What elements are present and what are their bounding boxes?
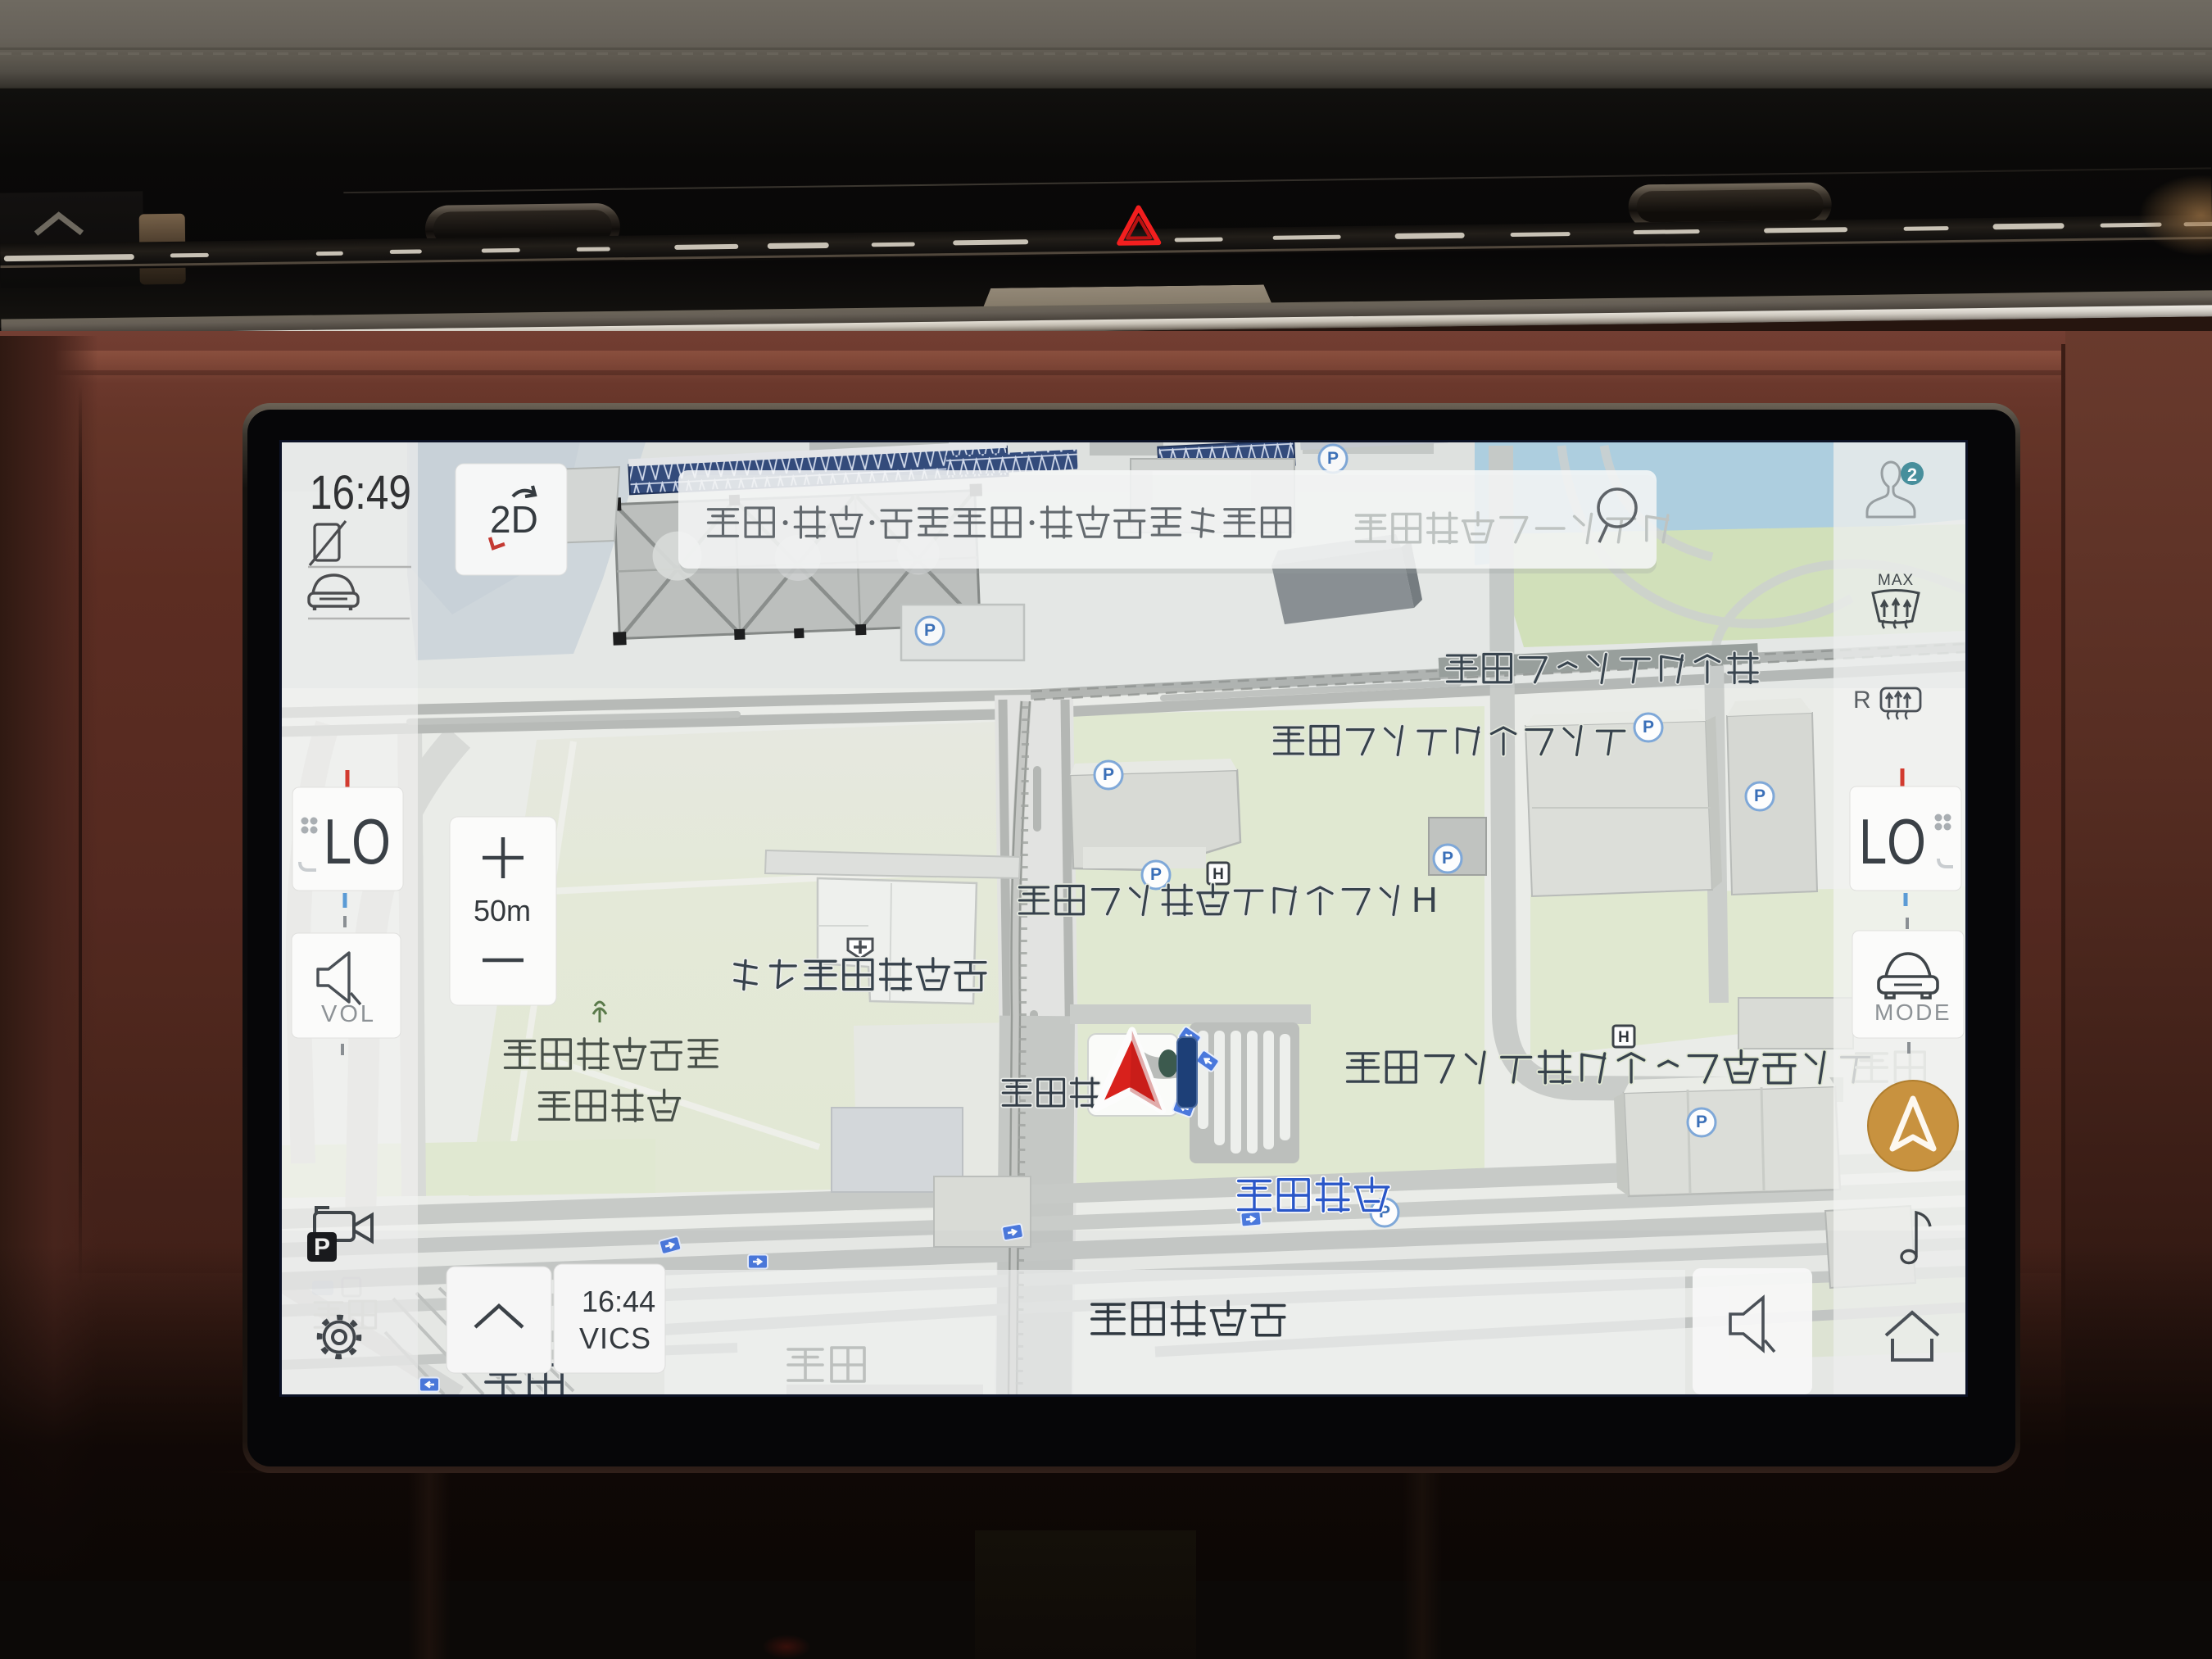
svg-text:P: P bbox=[1442, 849, 1453, 868]
svg-text:R: R bbox=[1853, 687, 1871, 714]
svg-text:P: P bbox=[1103, 765, 1114, 784]
svg-text:50m: 50m bbox=[474, 894, 531, 927]
svg-text:H: H bbox=[1412, 880, 1438, 920]
svg-text:H: H bbox=[1618, 1029, 1630, 1046]
svg-text:LO: LO bbox=[324, 805, 391, 877]
svg-text:P: P bbox=[1754, 786, 1766, 805]
svg-text:VOL: VOL bbox=[321, 1001, 376, 1027]
svg-text:P: P bbox=[1643, 718, 1654, 737]
svg-text:MODE: MODE bbox=[1874, 999, 1951, 1025]
svg-text:P: P bbox=[1696, 1113, 1707, 1131]
svg-text:LO: LO bbox=[1859, 805, 1926, 877]
svg-text:P: P bbox=[1150, 865, 1162, 884]
svg-text:H: H bbox=[1213, 866, 1224, 883]
